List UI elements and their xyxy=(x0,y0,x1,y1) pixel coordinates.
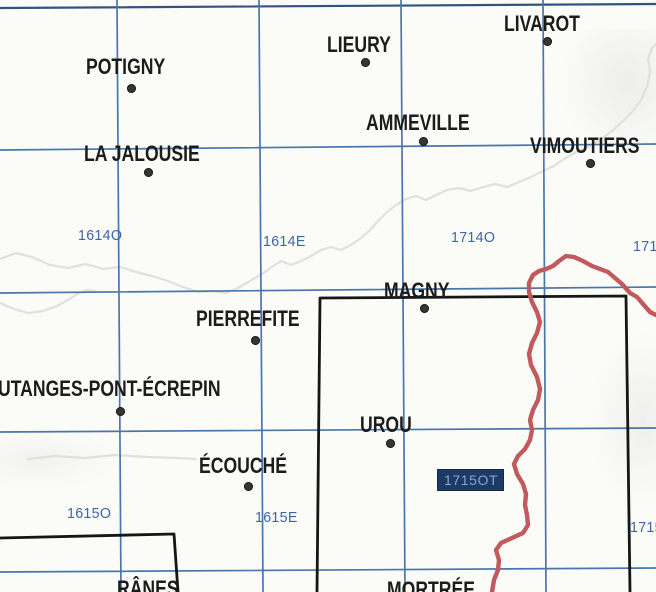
town-dot xyxy=(244,482,253,491)
town-dot xyxy=(116,407,125,416)
sheet-number-label: 1614O xyxy=(78,228,122,243)
sheet-number-label: 1714E xyxy=(633,239,656,254)
town-label: LIEURY xyxy=(327,34,391,56)
sheet-number-label: 1614E xyxy=(263,234,306,249)
sheet-number-label: 1615E xyxy=(255,510,298,525)
town-label: UROU xyxy=(360,414,412,436)
town-dot xyxy=(144,168,153,177)
map-sheet-index: 1715OT POTIGNYLIEURYLIVAROTAMMEVILLEVIMO… xyxy=(0,0,656,592)
town-label: LIVAROT xyxy=(504,13,580,35)
sheet-number-label: 1715E xyxy=(630,520,656,535)
town-dot xyxy=(586,159,595,168)
town-label: LA JALOUSIE xyxy=(84,143,200,165)
town-label: PIERREFITE xyxy=(196,308,300,330)
town-label: MAGNY xyxy=(384,280,450,302)
town-dot xyxy=(127,84,136,93)
sheet-number-label: 1615O xyxy=(67,506,111,521)
town-label: VIMOUTIERS xyxy=(530,135,640,157)
town-label: ÉCOUCHÉ xyxy=(199,455,287,477)
town-label: UTANGES-PONT-ÉCREPIN xyxy=(0,378,221,400)
town-dot xyxy=(420,304,429,313)
town-label: RÂNES xyxy=(117,578,179,592)
town-dot xyxy=(251,336,260,345)
town-label: POTIGNY xyxy=(86,56,165,78)
town-dot xyxy=(419,137,428,146)
town-label: AMMEVILLE xyxy=(366,112,470,134)
town-dot xyxy=(386,439,395,448)
sheet-number-label: 1714O xyxy=(451,230,495,245)
town-dot xyxy=(543,37,552,46)
town-dot xyxy=(361,58,370,67)
town-label: MORTRÉE xyxy=(387,579,475,592)
highlighted-sheet-label: 1715OT xyxy=(437,469,504,491)
labels-layer: 1715OT POTIGNYLIEURYLIVAROTAMMEVILLEVIMO… xyxy=(0,0,656,592)
